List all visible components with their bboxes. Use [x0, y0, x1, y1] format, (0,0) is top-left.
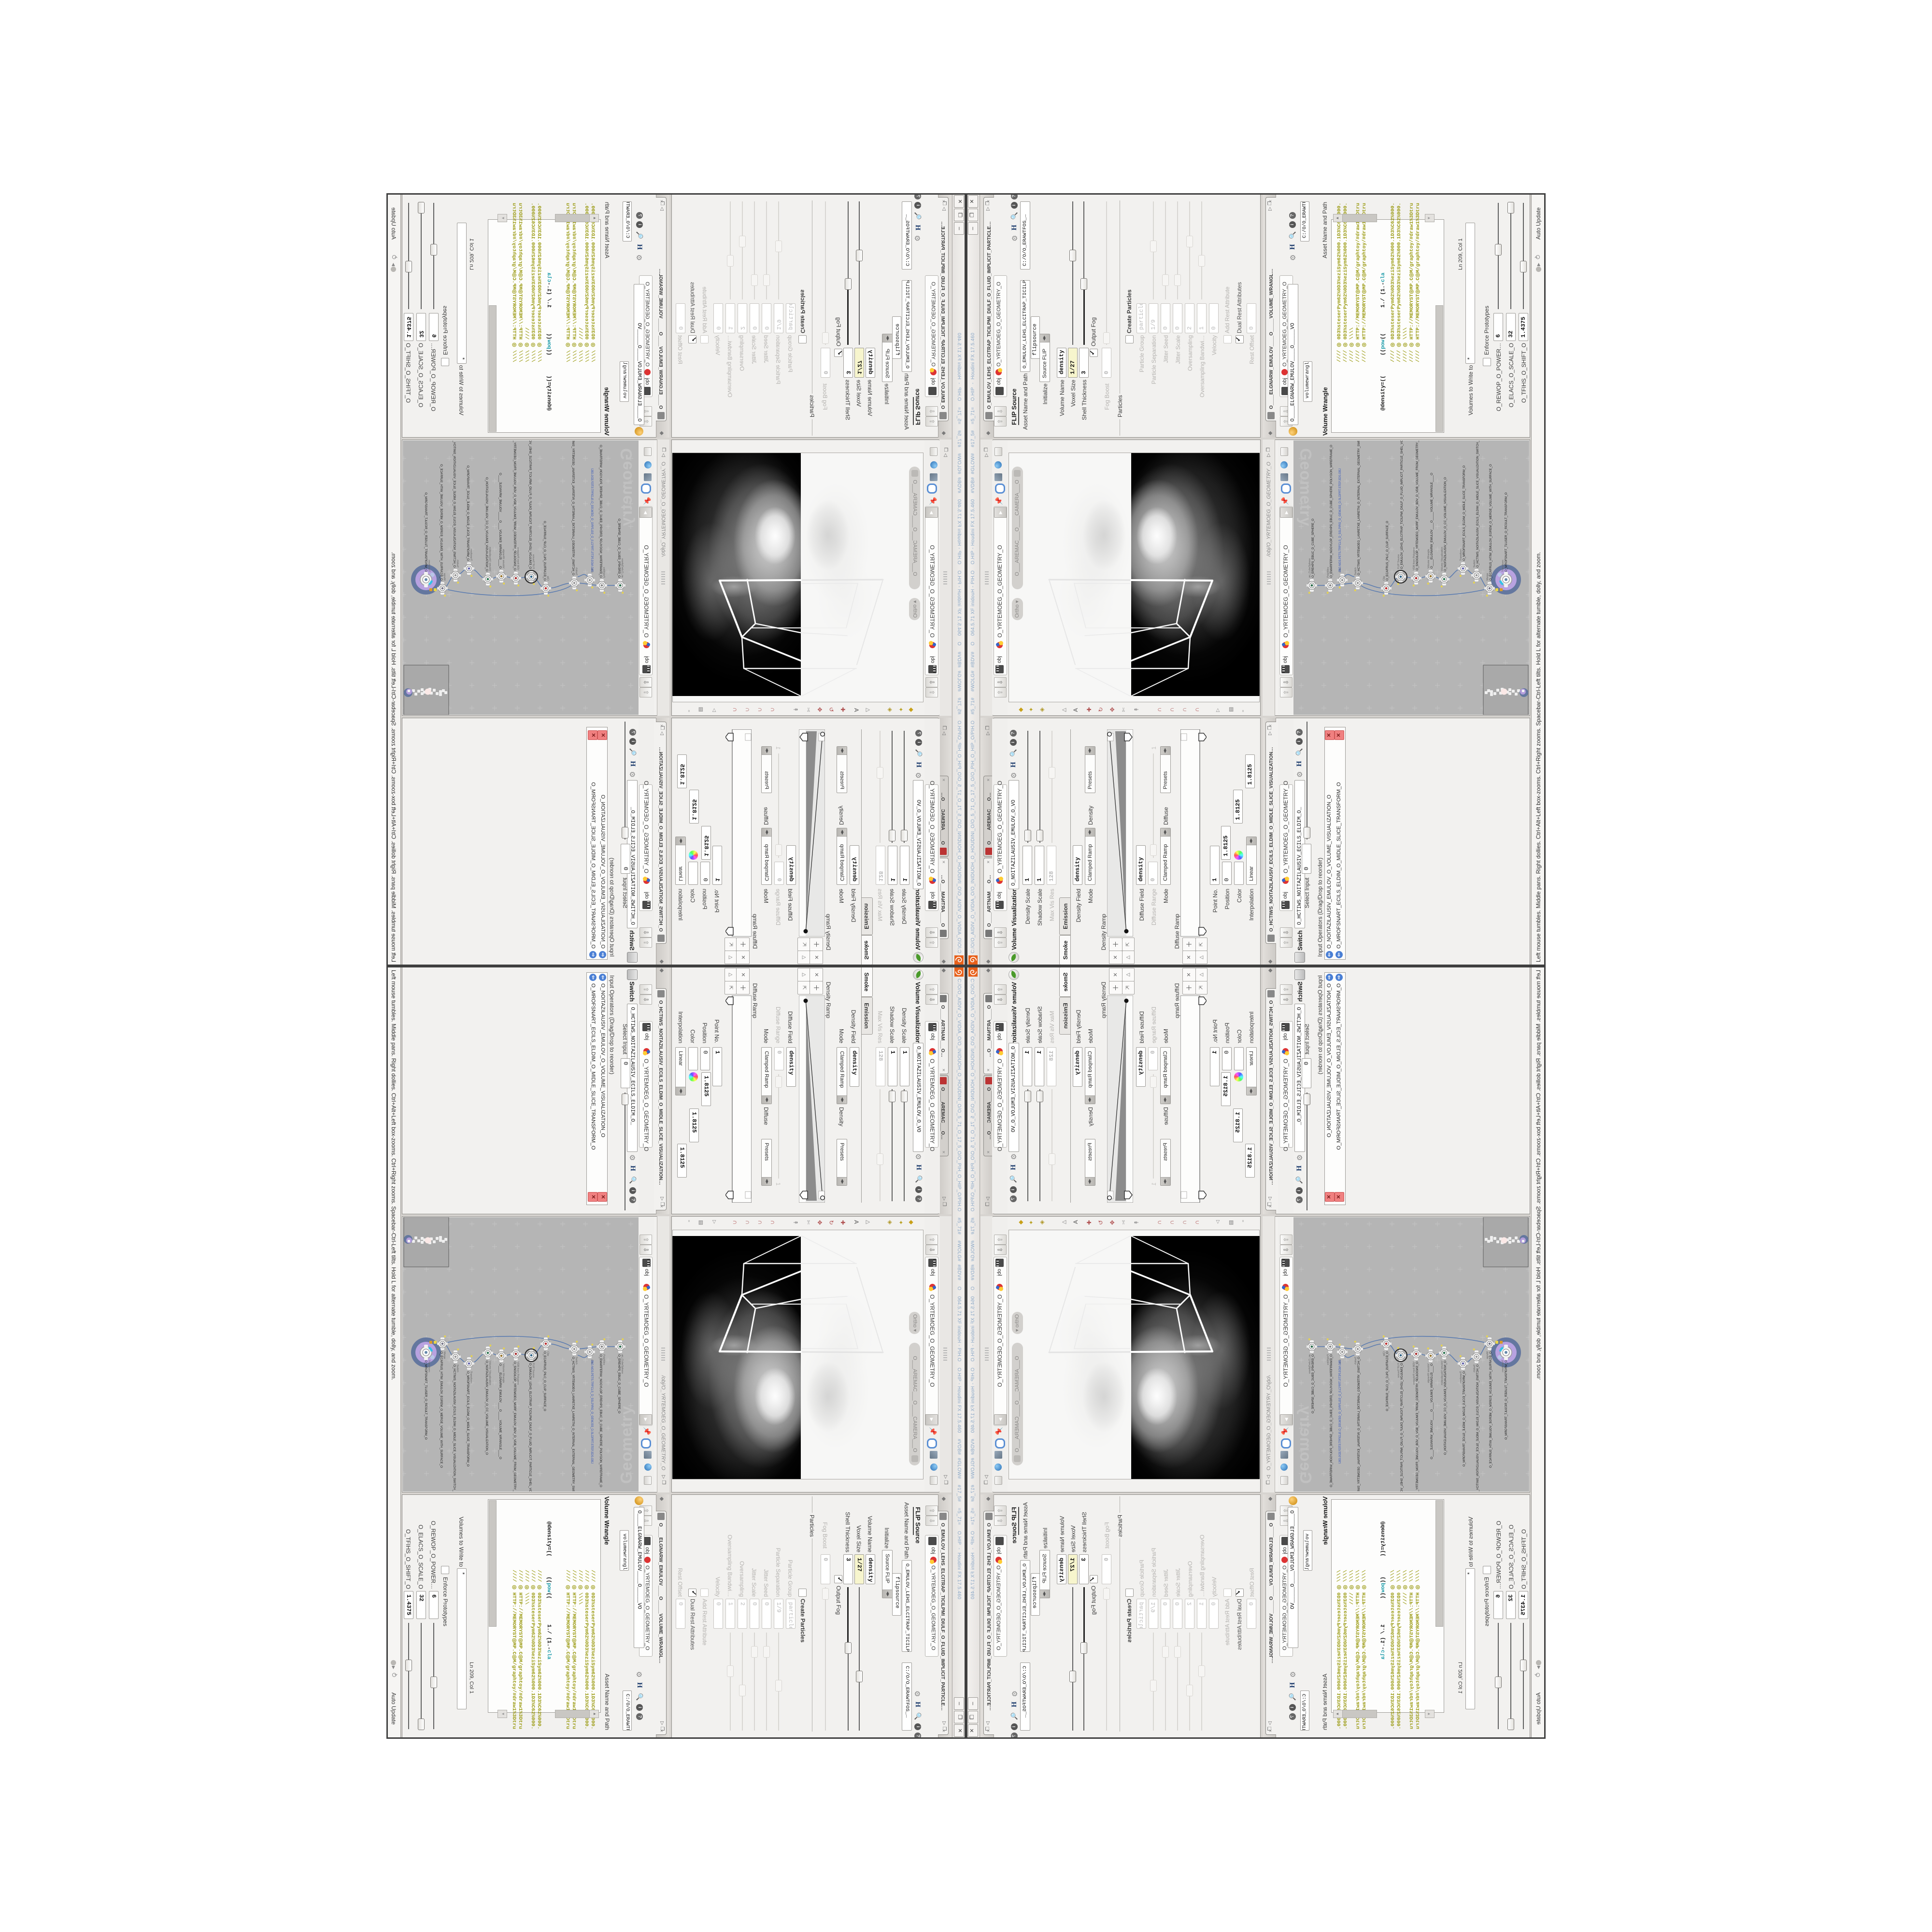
- svg-text:O____ELGNARW_EMULOV____O_____V: O____ELGNARW_EMULOV____O_____VOLUME_WRAN…: [498, 473, 502, 568]
- svg-text:O_NOITAZILAUSIV_EMULOV_O_CC_VO: O_NOITAZILAUSIV_EMULOV_O_CC_VOLUME_VISUA…: [1444, 1361, 1447, 1455]
- svg-text:Geometry: Geometry: [1297, 1406, 1315, 1484]
- svg-text:O_SNOGILOP_YRTEMOEG_MORF_EMULO: O_SNOGILOP_YRTEMOEG_MORF_EMULOV_BDV_D_VD…: [513, 1362, 516, 1492]
- svg-text:O_EREHPS_EBUC_D_CUBE_SPHERE_O: O_EREHPS_EBUC_D_CUBE_SPHERE_O: [1311, 519, 1315, 578]
- svg-text:Clip: Clip: [546, 1351, 549, 1356]
- svg-text:O_EREHPS_EBUC_D_CUBE_SPHERE_O: O_EREHPS_EBUC_D_CUBE_SPHERE_O: [1311, 1354, 1315, 1413]
- svg-text:VDB from Polygons: VDB from Polygons: [516, 1362, 519, 1385]
- svg-text:O_MROFSNART_TLUSER_O_RESULT_TR: O_MROFSNART_TLUSER_O_RESULT_TRANSFORM_O: [1505, 1360, 1508, 1440]
- svg-text:O_EMULOV_LEHS_ELCITRAP_TICILPM: O_EMULOV_LEHS_ELCITRAP_TICILPMI_DIULF_O_…: [528, 440, 532, 569]
- svg-text:Volume Visualization: Volume Visualization: [488, 547, 491, 571]
- svg-text:O_HCTIWS_NOITAZILAUSIV_ECILS_E: O_HCTIWS_NOITAZILAUSIV_ECILS_ELDIM_O_MID…: [453, 440, 456, 568]
- svg-text:FLIP Source: FLIP Source: [532, 1363, 535, 1378]
- svg-text:Volume Visualization: Volume Visualization: [488, 1361, 491, 1385]
- svg-text:Volume Wrangle: Volume Wrangle: [502, 549, 505, 568]
- svg-text:O_HCTIWS_YRTEMOEG_LANRETXE_LAN: O_HCTIWS_YRTEMOEG_LANRETXE_LANRETNI_O_IN…: [1357, 1357, 1361, 1492]
- svg-text:Transform: Transform: [469, 1371, 472, 1383]
- svg-text:O____ELGNARW_EMULOV____O_____V: O____ELGNARW_EMULOV____O_____VOLUME_WRAN…: [498, 1364, 502, 1459]
- svg-text:O_EMARFERIW_NOGYLOP_EREHPS_EBU: O_EMARFERIW_NOGYLOP_EREHPS_EBUC_D_CUBE_S…: [1330, 445, 1333, 578]
- svg-text:PolyWire: PolyWire: [602, 567, 605, 578]
- svg-text:O_ECAFRUS_HTIW_EMULOV_EGREM_O_: O_ECAFRUS_HTIW_EMULOV_EGREM_O_MERGE_VOLU…: [1489, 464, 1492, 581]
- svg-text:O_MROFSNART_ECILS_ELDIM_O_MIDL: O_MROFSNART_ECILS_ELDIM_O_MIDLE_SLICE_TR…: [1463, 1371, 1466, 1466]
- svg-text:O_ECAFRUS_PILC_O_CLIP_SURFACE_: O_ECAFRUS_PILC_O_CLIP_SURFACE_O: [1386, 1351, 1389, 1411]
- svg-text:O_ECAFRUS_HTIW_EMULOV_EGREM_O_: O_ECAFRUS_HTIW_EMULOV_EGREM_O_MERGE_VOLU…: [440, 464, 443, 581]
- svg-text:O_SNOGILOP_YRTEMOEG_MORF_EMULO: O_SNOGILOP_YRTEMOEG_MORF_EMULOV_BDV_D_VD…: [1416, 1362, 1419, 1492]
- svg-text:O_EMULOV_LEHS_ELCITRAP_TICILPM: O_EMULOV_LEHS_ELCITRAP_TICILPMI_DIULF_O_…: [1400, 1363, 1404, 1492]
- svg-text:Geometry: Geometry: [1297, 448, 1315, 526]
- svg-text:O_ECAFRUS_HTIW_EMULOV_EGREM_O_: O_ECAFRUS_HTIW_EMULOV_EGREM_O_MERGE_VOLU…: [440, 1351, 443, 1468]
- svg-text:O_EMARFERIW_NOGYLOP_EREHPS_EBU: O_EMARFERIW_NOGYLOP_EREHPS_EBUC_D_CUBE_S…: [599, 1354, 602, 1487]
- svg-text:O_EMULOV_LEHS_ELCITRAP_TICILPM: O_EMULOV_LEHS_ELCITRAP_TICILPMI_DIULF_O_…: [528, 1363, 532, 1492]
- svg-text:JBO.NO3.PETS.TRFCLS_D_5SLPIRG_: JBO.NO3.PETS.TRFCLS_D_5SLPIRG_O_GEMJS5_D…: [1339, 469, 1342, 572]
- svg-text:O_NOITAZILAUSIV_EMULOV_O_CC_VO: O_NOITAZILAUSIV_EMULOV_O_CC_VOLUME_VISUA…: [1444, 477, 1447, 571]
- svg-text:JBO.NO3.PETS.TRFCLS_D_5SLPIRG_: JBO.NO3.PETS.TRFCLS_D_5SLPIRG_O_GEMJS5_D…: [590, 469, 593, 572]
- svg-text:O_MROFSNART_ECILS_ELDIM_O_MIDL: O_MROFSNART_ECILS_ELDIM_O_MIDLE_SLICE_TR…: [466, 466, 469, 561]
- svg-text:O_EREHPS_EBUC_D_CUBE_SPHERE_O: O_EREHPS_EBUC_D_CUBE_SPHERE_O: [617, 519, 621, 578]
- svg-text:O_NOITAZILAUSIV_EMULOV_O_CC_VO: O_NOITAZILAUSIV_EMULOV_O_CC_VOLUME_VISUA…: [485, 1361, 488, 1455]
- svg-text:O_SNOGILOP_YRTEMOEG_MORF_EMULO: O_SNOGILOP_YRTEMOEG_MORF_EMULOV_BDV_D_VD…: [1416, 440, 1419, 570]
- svg-text:O_MROFSNART_TLUSER_O_RESULT_TR: O_MROFSNART_TLUSER_O_RESULT_TRANSFORM_O: [424, 492, 427, 572]
- svg-text:O____ELGNARW_EMULOV____O_____V: O____ELGNARW_EMULOV____O_____VOLUME_WRAN…: [1430, 473, 1434, 568]
- svg-text:O_HCTIWS_NOITAZILAUSIV_ECILS_E: O_HCTIWS_NOITAZILAUSIV_ECILS_ELDIM_O_MID…: [453, 1364, 456, 1492]
- svg-text:O_ECAFRUS_HTIW_EMULOV_EGREM_O_: O_ECAFRUS_HTIW_EMULOV_EGREM_O_MERGE_VOLU…: [1489, 1351, 1492, 1468]
- svg-text:Clip: Clip: [546, 576, 549, 581]
- svg-text:O_ECAFRUS_PILC_O_CLIP_SURFACE_: O_ECAFRUS_PILC_O_CLIP_SURFACE_O: [543, 1351, 546, 1411]
- svg-text:O_EMULOV_LEHS_ELCITRAP_TICILPM: O_EMULOV_LEHS_ELCITRAP_TICILPMI_DIULF_O_…: [1400, 440, 1404, 569]
- svg-text:O_SNOGILOP_YRTEMOEG_MORF_EMULO: O_SNOGILOP_YRTEMOEG_MORF_EMULOV_BDV_D_VD…: [513, 440, 516, 570]
- svg-text:Merge: Merge: [443, 573, 446, 581]
- svg-text:JBO.NO3.PETS.TRFCLS_D_5SLPIRG_: JBO.NO3.PETS.TRFCLS_D_5SLPIRG_O_GEMJS5_D…: [590, 1360, 593, 1463]
- svg-text:FLIP Source: FLIP Source: [532, 554, 535, 569]
- svg-text:an_CubeSphere: an_CubeSphere: [621, 558, 624, 578]
- svg-text:O_ECAFRUS_PILC_O_CLIP_SURFACE_: O_ECAFRUS_PILC_O_CLIP_SURFACE_O: [1386, 521, 1389, 581]
- svg-text:O_HCTIWS_NOITAZILAUSIV_ECILS_E: O_HCTIWS_NOITAZILAUSIV_ECILS_ELDIM_O_MID…: [1476, 440, 1479, 568]
- svg-text:Geometry: Geometry: [617, 448, 635, 526]
- svg-text:Merge: Merge: [443, 1351, 446, 1359]
- svg-text:VDB from Polygons: VDB from Polygons: [516, 547, 519, 570]
- svg-text:O____ELGNARW_EMULOV____O_____V: O____ELGNARW_EMULOV____O_____VOLUME_WRAN…: [1430, 1364, 1434, 1459]
- svg-text:Geometry: Geometry: [617, 1406, 635, 1484]
- svg-text:O_MROFSNART_TLUSER_O_RESULT_TR: O_MROFSNART_TLUSER_O_RESULT_TRANSFORM_O: [1505, 492, 1508, 572]
- svg-text:O_EMARFERIW_NOGYLOP_EREHPS_EBU: O_EMARFERIW_NOGYLOP_EREHPS_EBUC_D_CUBE_S…: [1330, 1354, 1333, 1487]
- svg-text:Transform: Transform: [427, 560, 430, 572]
- svg-text:O_EREHPS_EBUC_D_CUBE_SPHERE_O: O_EREHPS_EBUC_D_CUBE_SPHERE_O: [617, 1354, 621, 1413]
- svg-text:O_HCTIWS_YRTEMOEG_LANRETXE_LAN: O_HCTIWS_YRTEMOEG_LANRETXE_LANRETNI_O_IN…: [571, 440, 575, 575]
- svg-text:Transform: Transform: [469, 549, 472, 561]
- svg-text:Switch: Switch: [456, 560, 459, 568]
- svg-text:PolyWire: PolyWire: [602, 1354, 605, 1365]
- svg-text:O_HCTIWS_YRTEMOEG_LANRETXE_LAN: O_HCTIWS_YRTEMOEG_LANRETXE_LANRETNI_O_IN…: [1357, 440, 1361, 575]
- svg-text:Switch: Switch: [456, 1364, 459, 1372]
- svg-text:Transform: Transform: [427, 1360, 430, 1372]
- svg-text:Switch: Switch: [575, 568, 578, 575]
- svg-text:O_MROFSNART_TLUSER_O_RESULT_TR: O_MROFSNART_TLUSER_O_RESULT_TRANSFORM_O: [424, 1360, 427, 1440]
- svg-text:Switch: Switch: [575, 1357, 578, 1364]
- svg-text:O_MROFSNART_ECILS_ELDIM_O_MIDL: O_MROFSNART_ECILS_ELDIM_O_MIDLE_SLICE_TR…: [466, 1371, 469, 1466]
- svg-text:Volume Wrangle: Volume Wrangle: [502, 1364, 505, 1383]
- svg-text:O_HCTIWS_NOITAZILAUSIV_ECILS_E: O_HCTIWS_NOITAZILAUSIV_ECILS_ELDIM_O_MID…: [1476, 1364, 1479, 1492]
- svg-text:O_MROFSNART_ECILS_ELDIM_O_MIDL: O_MROFSNART_ECILS_ELDIM_O_MIDLE_SLICE_TR…: [1463, 466, 1466, 561]
- svg-text:O_NOITAZILAUSIV_EMULOV_O_CC_VO: O_NOITAZILAUSIV_EMULOV_O_CC_VOLUME_VISUA…: [485, 477, 488, 571]
- svg-text:O_EMARFERIW_NOGYLOP_EREHPS_EBU: O_EMARFERIW_NOGYLOP_EREHPS_EBUC_D_CUBE_S…: [599, 445, 602, 578]
- svg-text:an_CubeSphere: an_CubeSphere: [621, 1354, 624, 1374]
- svg-text:O_ECAFRUS_PILC_O_CLIP_SURFACE_: O_ECAFRUS_PILC_O_CLIP_SURFACE_O: [543, 521, 546, 581]
- svg-text:JBO.NO3.PETS.TRFCLS_D_5SLPIRG_: JBO.NO3.PETS.TRFCLS_D_5SLPIRG_O_GEMJS5_D…: [1339, 1360, 1342, 1463]
- svg-text:O_HCTIWS_YRTEMOEG_LANRETXE_LAN: O_HCTIWS_YRTEMOEG_LANRETXE_LANRETNI_O_IN…: [571, 1357, 575, 1492]
